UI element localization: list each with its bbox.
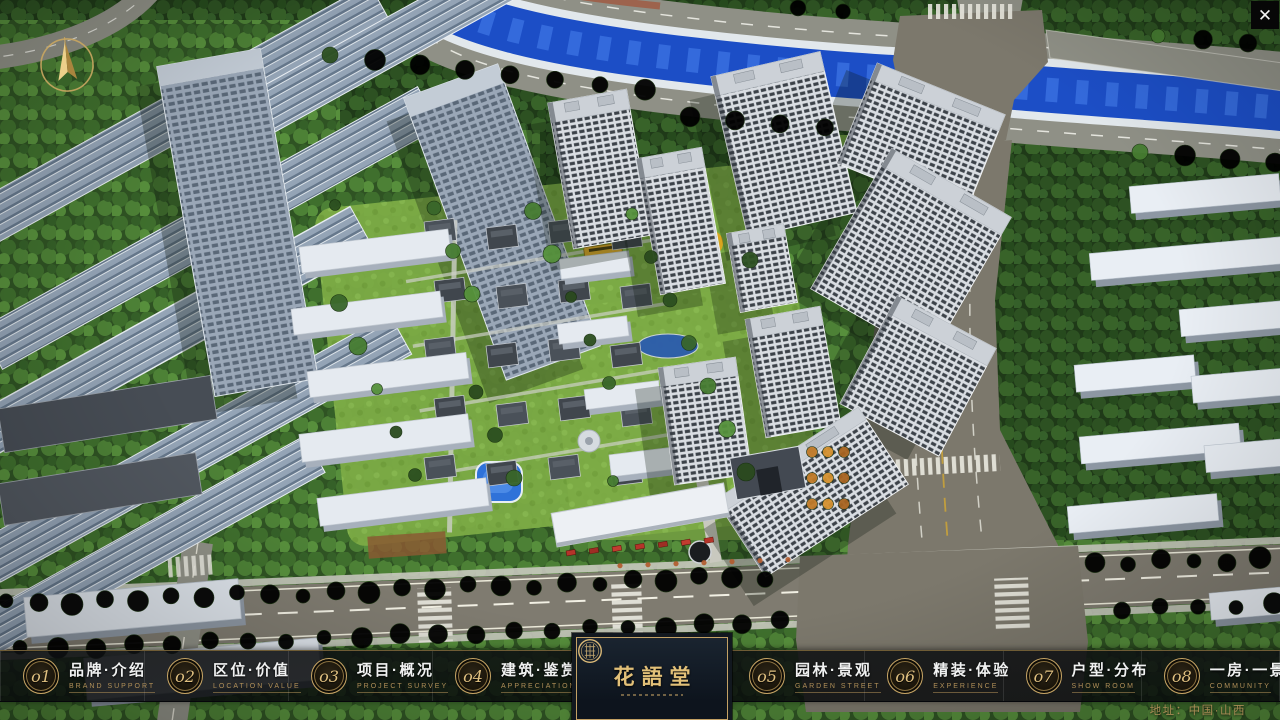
project-name: 花語堂: [607, 661, 698, 691]
nav-subtitle: COMMUNITY: [1210, 683, 1271, 693]
nav-title: 建筑·鉴赏: [501, 659, 576, 680]
nav-subtitle: BRAND SUPPORT: [69, 683, 155, 693]
nav-item-floorplans[interactable]: o7 户型·分布 SHOW ROOM: [1003, 651, 1141, 701]
nav-item-architecture[interactable]: o4 建筑·鉴赏 APPRECIATION: [432, 651, 576, 701]
nav-number-badge: o6: [887, 658, 923, 694]
nav-subtitle: APPRECIATION: [501, 683, 577, 693]
nav-title: 园林·景观: [795, 659, 864, 680]
nav-title: 品牌·介绍: [69, 659, 144, 680]
nav-title: 一房·一景: [1210, 659, 1279, 680]
close-icon: ✕: [1258, 7, 1272, 24]
nav-title: 户型·分布: [1072, 659, 1141, 680]
nav-title: 项目·概况: [357, 659, 432, 680]
nav-number-badge: o5: [749, 658, 785, 694]
project-address: 地址：中国·山西: [1150, 702, 1246, 718]
nav-number-badge: o2: [167, 658, 203, 694]
nav-item-garden[interactable]: o5 园林·景观 GARDEN STREET: [726, 651, 864, 701]
project-logo-home-button[interactable]: 花語堂: [576, 637, 728, 720]
compass-north-icon: [36, 34, 98, 96]
nav-number-badge: o4: [455, 658, 491, 694]
nav-title: 精装·体验: [933, 659, 1002, 680]
nav-subtitle: EXPERIENCE: [933, 683, 998, 693]
close-button[interactable]: ✕: [1251, 1, 1279, 29]
seal-logo-icon: [577, 638, 603, 664]
masterplan-3d-viewport[interactable]: [0, 0, 1280, 720]
nav-item-interior[interactable]: o6 精装·体验 EXPERIENCE: [864, 651, 1002, 701]
nav-number-badge: o3: [311, 658, 347, 694]
nav-subtitle: SHOW ROOM: [1072, 683, 1136, 693]
presentation-window: ✕ o1 品牌·介绍 BRAND SUPPORT o2 区位·价值 LOCATI…: [0, 0, 1280, 720]
nav-item-project[interactable]: o3 项目·概况 PROJECT SURVEY: [288, 651, 432, 701]
nav-item-location[interactable]: o2 区位·价值 LOCATION VALUE: [144, 651, 288, 701]
nav-number-badge: o1: [23, 658, 59, 694]
nav-number-badge: o8: [1164, 658, 1200, 694]
nav-title: 区位·价值: [213, 659, 288, 680]
nav-item-views[interactable]: o8 一房·一景 COMMUNITY: [1141, 651, 1280, 701]
logo-tagline-rule: [621, 694, 683, 696]
nav-item-brand[interactable]: o1 品牌·介绍 BRAND SUPPORT: [0, 651, 144, 701]
nav-number-badge: o7: [1026, 658, 1062, 694]
